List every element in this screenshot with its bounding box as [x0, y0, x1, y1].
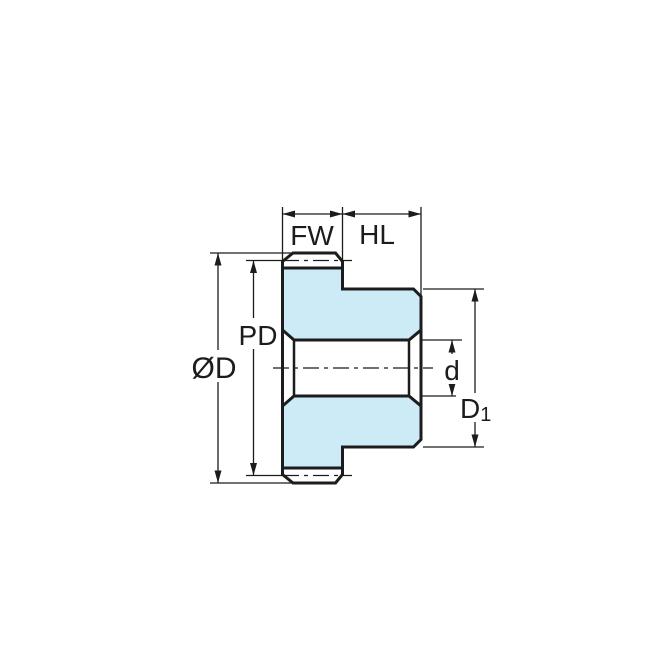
gear-body-lower — [283, 396, 422, 468]
gear-dimension-diagram: FW HL ØD PD d D1 — [0, 0, 670, 670]
arrow-od-bottom — [215, 471, 222, 484]
label-hub-length: HL — [359, 219, 395, 250]
label-hub-diameter-main: D — [460, 393, 480, 424]
label-pitch-diameter: PD — [239, 320, 278, 351]
label-face-width: FW — [290, 220, 334, 251]
arrow-d1-bottom — [472, 435, 479, 448]
arrow-od-top — [215, 253, 222, 266]
arrow-fw-right — [330, 211, 343, 218]
gear-cross-section-drawing: FW HL ØD PD d D1 — [0, 0, 670, 670]
arrow-d-top — [449, 340, 456, 353]
arrow-hl-left — [343, 211, 356, 218]
arrow-hl-right — [409, 211, 422, 218]
label-hub-diameter-subscript: 1 — [480, 404, 491, 426]
gear-body-upper — [283, 268, 422, 340]
arrow-fw-left — [283, 211, 296, 218]
label-outside-diameter: ØD — [192, 352, 237, 385]
arrow-pd-top — [250, 261, 257, 274]
arrow-pd-bottom — [250, 463, 257, 476]
arrow-d1-top — [472, 289, 479, 302]
label-bore-diameter: d — [444, 355, 460, 386]
